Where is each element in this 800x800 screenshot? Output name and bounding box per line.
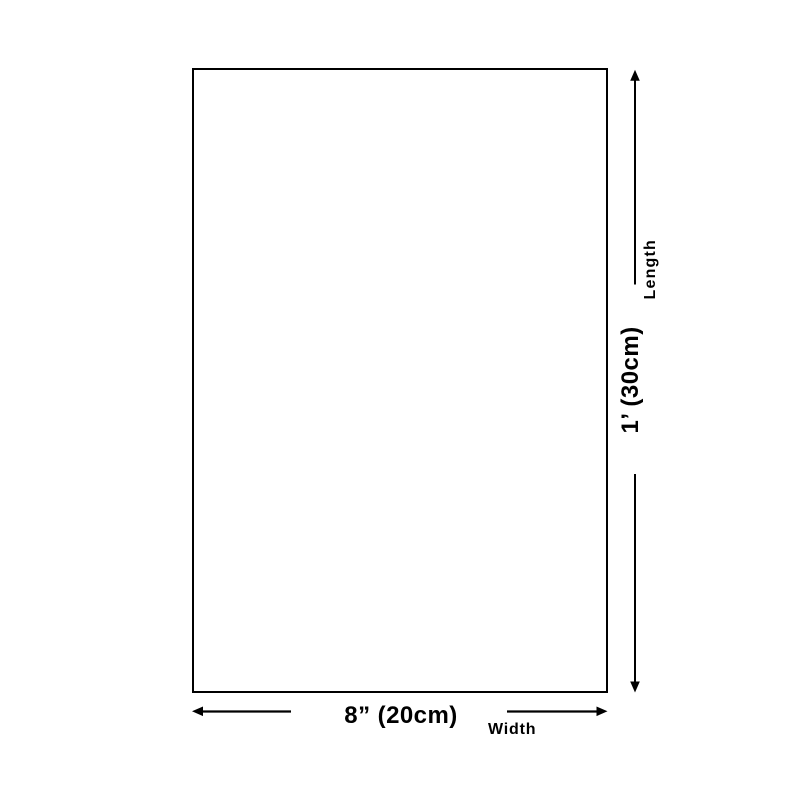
svg-text:Width: Width	[488, 721, 536, 738]
svg-text:1’ (30cm): 1’ (30cm)	[617, 326, 644, 433]
svg-text:8” (20cm): 8” (20cm)	[344, 702, 457, 729]
svg-text:Length: Length	[642, 239, 659, 300]
